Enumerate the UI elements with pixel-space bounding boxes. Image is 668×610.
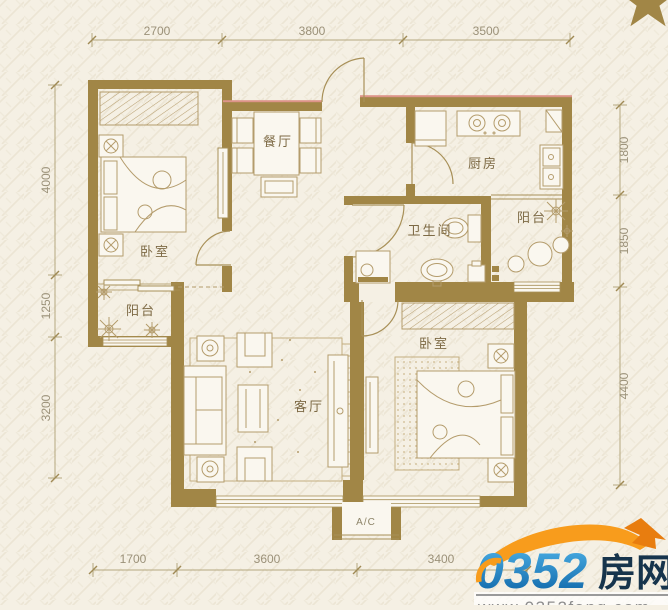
dim-top-1: 2700 bbox=[144, 24, 171, 38]
balcony-right-window bbox=[514, 282, 560, 292]
sofa bbox=[184, 366, 226, 455]
washing-machine-icon bbox=[356, 251, 390, 283]
lamp-table bbox=[197, 457, 224, 482]
armchair bbox=[237, 333, 272, 367]
logo-number: 0352 bbox=[476, 543, 587, 599]
flower-icon bbox=[97, 317, 121, 341]
dim-top-2: 3800 bbox=[299, 24, 326, 38]
balcony-left-window bbox=[103, 337, 167, 346]
bedroom2-door-opening bbox=[359, 282, 395, 302]
armchair bbox=[237, 447, 272, 481]
dim-left-1: 4000 bbox=[39, 166, 53, 193]
dim-bottom-2: 3600 bbox=[254, 552, 281, 566]
balcony-right-label: 阳台 bbox=[517, 210, 547, 225]
ac-label: A/C bbox=[356, 517, 376, 528]
flower-icon bbox=[544, 199, 568, 223]
dim-right-2: 1850 bbox=[617, 227, 631, 254]
tv-cabinet bbox=[328, 355, 348, 467]
lamp-table bbox=[197, 336, 224, 361]
living-label: 客厅 bbox=[294, 399, 324, 414]
dining-label: 餐厅 bbox=[263, 134, 293, 149]
bathroom-label: 卫生间 bbox=[407, 223, 452, 238]
logo-name: 房网 bbox=[598, 553, 668, 595]
balcony-left-label: 阳台 bbox=[126, 303, 156, 318]
floor-plan-canvas: 卧室 餐厅 厨房 卫生间 阳台 阳台 客厅 卧室 A/C bbox=[0, 0, 668, 605]
bathroom-cabinet bbox=[468, 265, 485, 282]
flower-icon bbox=[144, 322, 160, 338]
dim-top-3: 3500 bbox=[473, 24, 500, 38]
dim-left-2: 1250 bbox=[39, 292, 53, 319]
dim-right-1: 1800 bbox=[617, 136, 631, 163]
living-room-window bbox=[216, 496, 343, 507]
dim-bottom-1: 1700 bbox=[120, 552, 147, 566]
bedroom-left-label: 卧室 bbox=[140, 244, 170, 259]
coffee-table bbox=[238, 385, 268, 432]
bedroom1-furniture bbox=[99, 92, 198, 256]
dim-bottom-3: 3400 bbox=[428, 552, 455, 566]
dim-left-3: 3200 bbox=[39, 394, 53, 421]
dim-right-3: 4400 bbox=[617, 372, 631, 399]
bedroom-right-label: 卧室 bbox=[419, 336, 449, 351]
flower-icon bbox=[96, 284, 112, 300]
logo-website: www.0352fang.com bbox=[477, 598, 650, 605]
kitchen-label: 厨房 bbox=[468, 156, 498, 171]
